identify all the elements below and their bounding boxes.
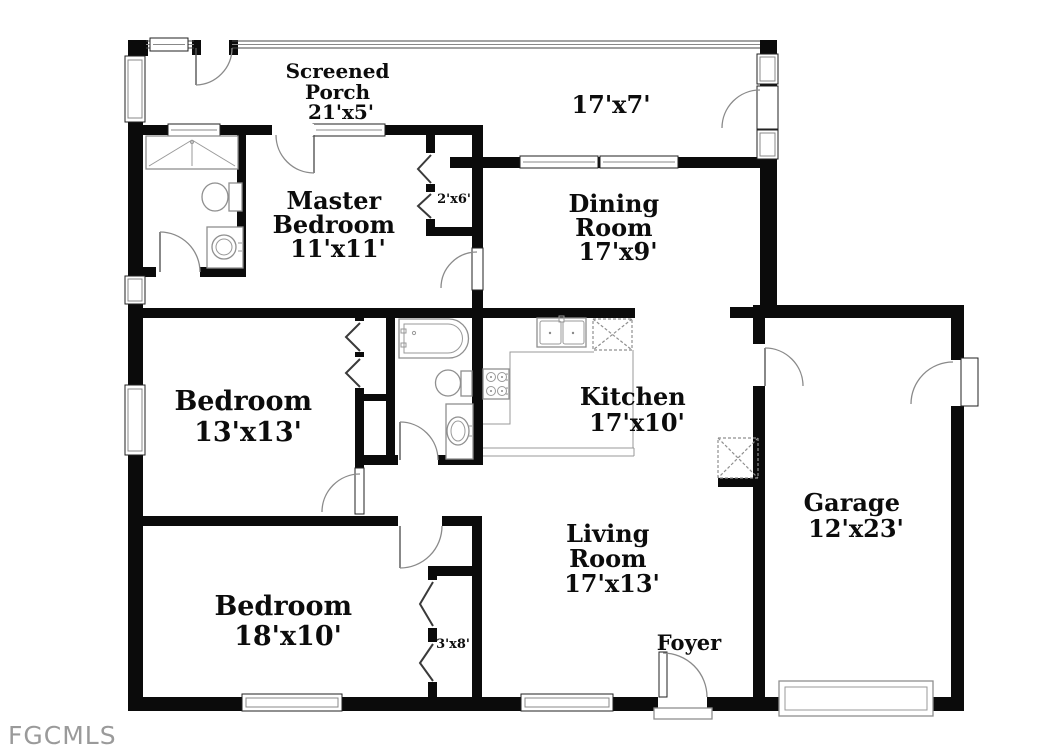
room-label-dining: Dining Room 17'x9' [568,189,667,266]
room-label-master-bedroom: Master Bedroom 11'x11' [273,186,404,263]
garage-entry-door [753,344,803,386]
wall-hvac-stub [718,478,765,487]
room-labels: Screened Porch 21'x5' 17'x7' Master Bedr… [174,59,908,655]
room-label-bedroom3: Bedroom 18'x10' [214,591,361,652]
wall-dining-stub [730,307,758,318]
porch-side-door [722,86,778,129]
front-door [654,652,712,719]
window-master-left [125,276,145,304]
bedroom2-door [322,468,364,514]
wall-master-closet-west [426,135,435,235]
shower [146,136,238,169]
room-label-foyer: Foyer [657,630,722,655]
bathtub [399,319,469,358]
room-label-kitchen: Kitchen 17'x10' [580,382,694,437]
master-bath-door [156,232,200,278]
window-porch-dining-1 [520,156,598,168]
floor-plan-page: Screened Porch 21'x5' 17'x7' Master Bedr… [0,0,1039,755]
room-label-hall-closet: 3'x8' [436,637,470,652]
wall-left-exterior [128,40,143,711]
bedroom3-door [398,515,442,568]
window-porch-east-1 [757,54,778,84]
wall-master-closet-bottom [426,227,483,236]
room-label-master-closet: 2'x6' [437,192,471,207]
room-label-screened-porch: Screened Porch 21'x5' [286,59,397,124]
kitchen-sink [537,316,586,347]
porch-corner-left [128,40,148,56]
master-porch-door [272,124,314,173]
master-entry-door [441,248,483,290]
porch-screen-wall [146,38,777,85]
toilet-master [202,183,242,211]
wall-livingroom-west [472,516,482,707]
hvac-unit [718,438,758,478]
porch-screen-window [150,38,188,51]
window-porch-dining-2 [600,156,678,168]
window-living-bottom [521,694,613,711]
hall-bath-door [398,422,438,466]
window-porch-left [125,56,145,122]
window-bedroom2-left [125,385,145,455]
room-label-porch-right: 17'x7' [571,90,650,119]
window-porch-master-1 [168,124,220,136]
garage-side-door [911,358,978,406]
stove [483,369,509,399]
toilet-hall-bath [436,370,473,396]
wall-bath2-west [386,308,395,464]
wall-garage-top [753,305,964,318]
vanity-sink-hall-bath [446,404,473,459]
garage-door [779,681,933,716]
room-label-garage: Garage 12'x23' [804,488,909,543]
dishwasher [593,319,632,350]
floor-plan-drawing: Screened Porch 21'x5' 17'x7' Master Bedr… [0,0,1039,755]
room-label-living: Living Room 17'x13' [564,519,660,598]
window-porch-master-2 [313,124,385,136]
room-label-bedroom2: Bedroom 13'x13' [174,386,321,448]
window-porch-east-2 [757,130,778,159]
fgcmls-watermark: FGCMLS [8,721,117,750]
screen-door [196,48,232,85]
vanity-sink-master [207,227,243,268]
window-bedroom3-bottom [242,694,342,711]
